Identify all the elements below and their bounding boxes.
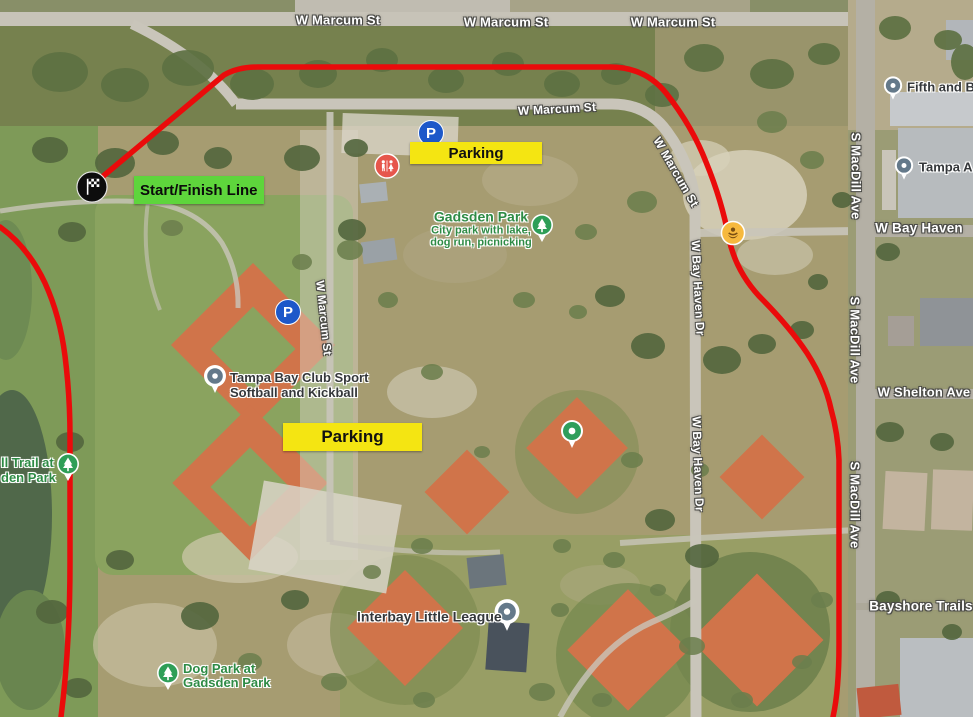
dog-park-line2: Gadsden Park xyxy=(183,676,270,690)
gadsden-park-subtitle-2: dog run, picnicking xyxy=(430,237,531,249)
tampa-poi-pin-icon[interactable] xyxy=(894,155,914,181)
start-finish-label: Start/Finish Line xyxy=(134,176,264,204)
map-canvas[interactable]: P P xyxy=(0,0,973,717)
amber-poi-icon[interactable] xyxy=(721,221,746,246)
parking-glyph: P xyxy=(275,299,301,325)
parking-annotation-central: Parking xyxy=(283,423,422,451)
street-label-macdill-2: S MacDill Ave xyxy=(848,297,863,384)
dog-park-line1: Dog Park at xyxy=(183,662,270,676)
street-label-macdill-3: S MacDill Ave xyxy=(848,462,863,549)
parking-annotation-north: Parking xyxy=(410,142,542,164)
fifth-poi-pin-icon[interactable] xyxy=(883,75,903,101)
gadsden-park-title: Gadsden Park xyxy=(430,210,531,225)
gadsden-park-label: Gadsden Park City park with lake, dog ru… xyxy=(430,210,531,249)
tampa-bay-club-line1: Tampa Bay Club Sport xyxy=(230,370,368,385)
street-label-macdill-1: S MacDill Ave xyxy=(849,133,864,220)
gadsden-park-subtitle-1: City park with lake, xyxy=(430,225,531,237)
street-label-bay-haven: W Bay Haven xyxy=(875,221,963,236)
street-label-shelton: W Shelton Ave xyxy=(878,385,971,400)
club-poi-pin-icon[interactable] xyxy=(203,364,227,394)
street-label-marcum-top-3: W Marcum St xyxy=(631,15,716,30)
ballfield-green-pin-icon[interactable] xyxy=(560,419,584,449)
street-label-bayshore: Bayshore Trails xyxy=(869,599,973,614)
gadsden-park-icon[interactable] xyxy=(530,213,554,243)
interbay-label: Interbay Little League xyxy=(357,610,502,625)
trail-line2: den Park xyxy=(1,470,56,485)
tampa-bay-club-line2: Softball and Kickball xyxy=(230,385,368,400)
street-label-marcum-top-2: W Marcum St xyxy=(464,15,549,30)
restroom-icon[interactable] xyxy=(374,153,400,179)
dog-park-icon[interactable] xyxy=(156,661,180,691)
trail-label: ll Trail at den Park xyxy=(1,455,56,485)
fifth-poi-label: Fifth and B xyxy=(907,80,973,95)
tampa-poi-label: Tampa A xyxy=(919,160,972,175)
street-label-marcum-top-1: W Marcum St xyxy=(296,13,381,28)
dog-park-label: Dog Park at Gadsden Park xyxy=(183,662,270,690)
trail-line1: ll Trail at xyxy=(1,455,56,470)
checkered-flag-icon xyxy=(76,171,109,204)
parking-icon-west[interactable]: P xyxy=(275,299,301,325)
tampa-bay-club-label: Tampa Bay Club Sport Softball and Kickba… xyxy=(230,370,368,400)
trail-park-icon[interactable] xyxy=(56,452,80,482)
